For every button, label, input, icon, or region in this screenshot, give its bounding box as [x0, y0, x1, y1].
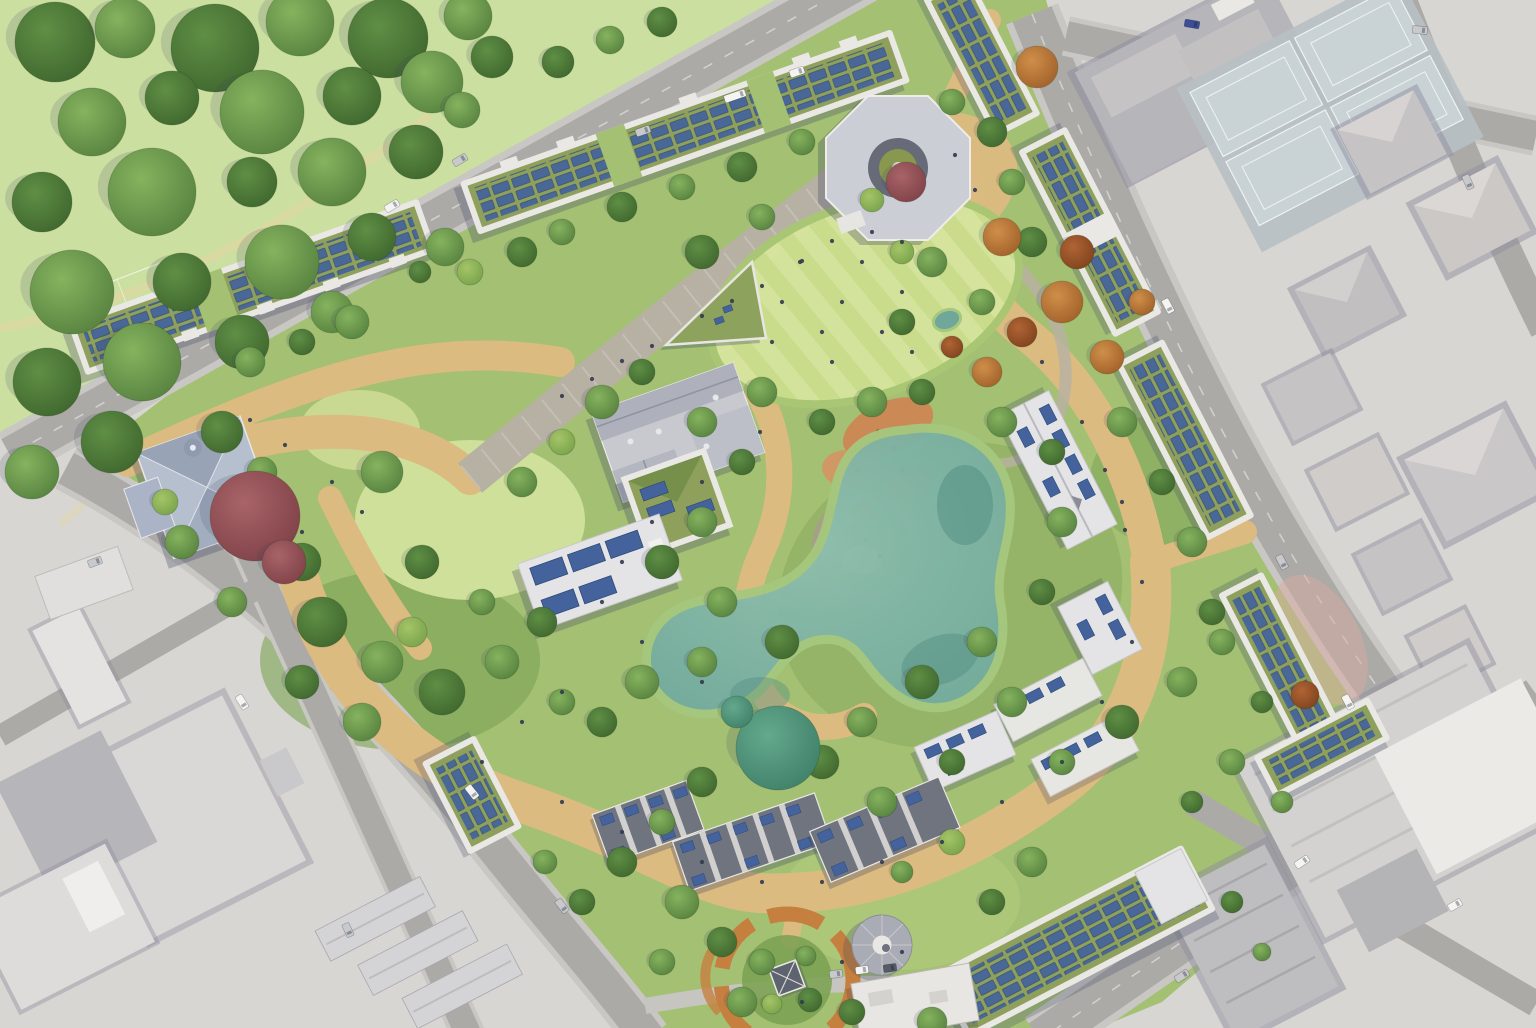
tree: [1090, 340, 1124, 374]
tree: [727, 152, 757, 182]
person: [770, 340, 774, 344]
person: [700, 680, 704, 684]
tree: [847, 707, 877, 737]
tree: [727, 987, 757, 1017]
person: [760, 284, 764, 288]
tree: [629, 359, 655, 385]
masterplan-stage: [0, 0, 1536, 1028]
tree: [909, 379, 935, 405]
tree: [587, 707, 617, 737]
person: [590, 377, 594, 381]
person: [1060, 760, 1064, 764]
person: [880, 860, 884, 864]
tree: [997, 687, 1027, 717]
tree: [201, 411, 243, 453]
tree: [687, 407, 717, 437]
tree: [5, 445, 59, 499]
tree: [707, 587, 737, 617]
tree: [685, 235, 719, 269]
tree: [1271, 791, 1293, 813]
tree: [939, 89, 965, 115]
tree: [1219, 749, 1245, 775]
tree: [796, 946, 816, 966]
tree: [749, 204, 775, 230]
tree: [389, 125, 443, 179]
person: [760, 880, 764, 884]
tree: [721, 696, 753, 728]
tree: [939, 749, 965, 775]
tree: [1039, 439, 1065, 465]
tree: [749, 949, 775, 975]
tree: [987, 407, 1017, 437]
tree: [1199, 599, 1225, 625]
tree: [235, 347, 265, 377]
tree: [13, 348, 81, 416]
tree: [762, 994, 782, 1014]
tree: [220, 70, 304, 154]
person: [360, 510, 364, 514]
person: [940, 840, 944, 844]
tree: [217, 587, 247, 617]
person: [798, 260, 802, 264]
masterplan-svg: [0, 0, 1536, 1028]
tree: [1181, 791, 1203, 813]
tree: [917, 247, 947, 277]
tree: [285, 665, 319, 699]
person: [1140, 580, 1144, 584]
tree: [549, 219, 575, 245]
person: [860, 260, 864, 264]
person: [560, 394, 564, 398]
tree: [12, 172, 72, 232]
person: [283, 443, 287, 447]
tree: [343, 703, 381, 741]
tree: [507, 467, 537, 497]
tree: [1177, 527, 1207, 557]
person: [650, 344, 654, 348]
tree: [860, 188, 884, 212]
person: [953, 153, 957, 157]
person: [1130, 640, 1134, 644]
tree: [1149, 469, 1175, 495]
tree: [227, 157, 277, 207]
person: [620, 359, 624, 363]
person: [700, 314, 704, 318]
tree: [707, 927, 737, 957]
tree: [1041, 281, 1083, 323]
person: [1100, 700, 1104, 704]
tree: [1060, 235, 1094, 269]
person: [1080, 420, 1084, 424]
person: [1123, 528, 1127, 532]
tree: [979, 889, 1005, 915]
tree: [1105, 705, 1139, 739]
tree: [1167, 667, 1197, 697]
tree: [607, 847, 637, 877]
person: [880, 330, 884, 334]
tree: [1253, 943, 1271, 961]
person: [900, 240, 904, 244]
tree: [1047, 507, 1077, 537]
tree: [1221, 891, 1243, 913]
tree: [245, 225, 319, 299]
tree: [1107, 407, 1137, 437]
tree: [1016, 46, 1058, 88]
tree: [81, 411, 143, 473]
tree: [729, 449, 755, 475]
car: [829, 969, 843, 978]
tree: [969, 289, 995, 315]
car: [1412, 25, 1428, 34]
person: [248, 418, 252, 422]
person: [820, 330, 824, 334]
person: [973, 188, 977, 192]
tree: [857, 387, 887, 417]
person: [480, 760, 484, 764]
tree: [809, 409, 835, 435]
tree: [999, 169, 1025, 195]
tree: [891, 861, 913, 883]
person: [780, 300, 784, 304]
tree: [665, 885, 699, 919]
person: [1040, 360, 1044, 364]
car: [883, 963, 897, 972]
tree: [1291, 681, 1319, 709]
tree: [533, 850, 557, 874]
person: [870, 230, 874, 234]
tree: [153, 253, 211, 311]
person: [520, 720, 524, 724]
person: [600, 600, 604, 604]
tree: [152, 489, 178, 515]
person: [1120, 500, 1124, 504]
person: [560, 800, 564, 804]
car: [855, 965, 869, 974]
tree: [469, 589, 495, 615]
tree: [687, 647, 717, 677]
tree: [409, 261, 431, 283]
tree: [747, 377, 777, 407]
tree: [607, 192, 637, 222]
tree: [507, 237, 537, 267]
person: [840, 300, 844, 304]
tree: [977, 117, 1007, 147]
tree: [297, 597, 347, 647]
person: [910, 350, 914, 354]
person: [330, 480, 334, 484]
tree: [886, 162, 926, 202]
tree: [569, 889, 595, 915]
tree: [323, 67, 381, 125]
tree: [867, 787, 897, 817]
tree: [419, 669, 465, 715]
tree: [649, 809, 675, 835]
tree: [457, 259, 483, 285]
person: [840, 960, 844, 964]
person: [620, 560, 624, 564]
person: [1000, 800, 1004, 804]
person: [650, 520, 654, 524]
person: [830, 239, 834, 243]
tree: [1209, 629, 1235, 655]
tree: [839, 999, 865, 1025]
tree: [905, 665, 939, 699]
tree: [405, 545, 439, 579]
person: [758, 430, 762, 434]
tree: [972, 357, 1002, 387]
person: [900, 290, 904, 294]
tree: [335, 305, 369, 339]
person: [620, 830, 624, 834]
tree: [1017, 847, 1047, 877]
tree: [145, 71, 199, 125]
tree: [941, 336, 963, 358]
tree: [1029, 579, 1055, 605]
tree: [471, 36, 513, 78]
person: [300, 530, 304, 534]
tree: [967, 627, 997, 657]
person: [830, 360, 834, 364]
tree: [1251, 691, 1273, 713]
tree: [289, 329, 315, 355]
tree: [765, 625, 799, 659]
tree: [647, 7, 677, 37]
person: [640, 640, 644, 644]
tree: [1129, 289, 1155, 315]
person: [900, 950, 904, 954]
person: [820, 880, 824, 884]
tree: [789, 129, 815, 155]
person: [800, 1000, 804, 1004]
tree: [15, 2, 95, 82]
tree: [983, 218, 1021, 256]
tree: [625, 665, 659, 699]
tree: [687, 767, 717, 797]
person: [700, 860, 704, 864]
person: [700, 480, 704, 484]
tree: [889, 309, 915, 335]
tree: [348, 213, 396, 261]
tree: [585, 385, 619, 419]
person: [1103, 468, 1107, 472]
tree: [549, 429, 575, 455]
tree: [687, 507, 717, 537]
tree: [1017, 227, 1047, 257]
person: [560, 690, 564, 694]
tree: [596, 26, 624, 54]
tree: [645, 545, 679, 579]
tree: [444, 92, 480, 128]
tree: [298, 138, 366, 206]
tree: [649, 949, 675, 975]
tree: [426, 228, 464, 266]
tree: [361, 641, 403, 683]
tree: [103, 323, 181, 401]
tree: [485, 645, 519, 679]
tree: [361, 451, 403, 493]
tree: [108, 148, 196, 236]
tree: [165, 525, 199, 559]
tree: [58, 88, 126, 156]
tree: [527, 607, 557, 637]
person: [730, 299, 734, 303]
tree: [95, 0, 155, 58]
tree: [262, 540, 306, 584]
tree: [30, 250, 114, 334]
tree: [542, 46, 574, 78]
tree: [1007, 317, 1037, 347]
tree: [397, 617, 427, 647]
tree: [669, 174, 695, 200]
